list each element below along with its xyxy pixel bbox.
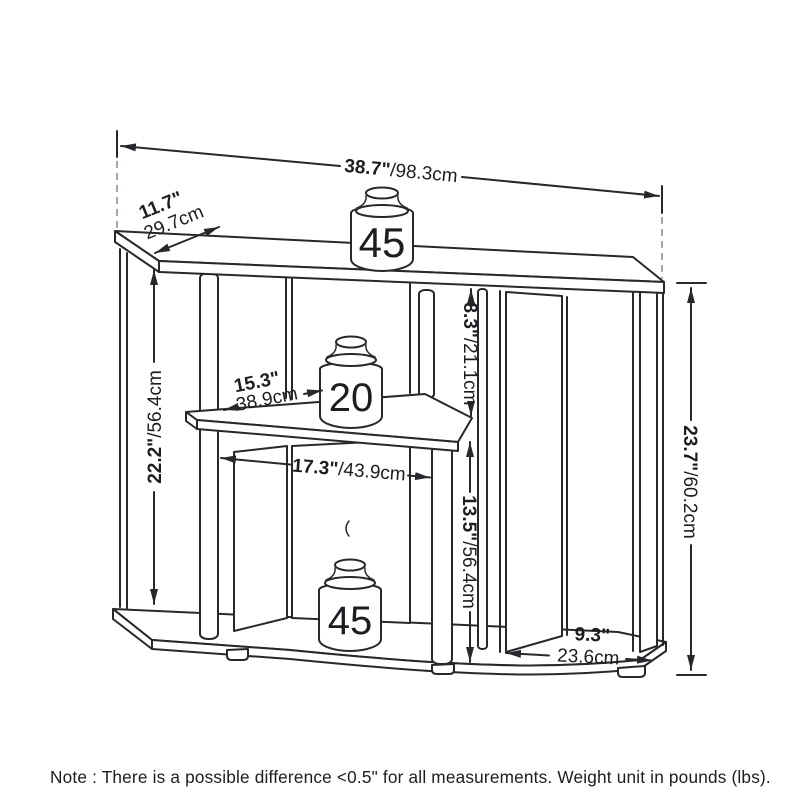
- measurement-note: Note : There is a possible difference <0…: [50, 767, 771, 787]
- diagram-page: 45 20 45 38.7"/98.3cm 11.7" 29.7cm: [0, 0, 800, 800]
- weight-top: 45: [351, 188, 413, 272]
- tv-stand-line-art: [113, 231, 666, 677]
- corner-tv-stand-dimension-diagram: 45 20 45 38.7"/98.3cm 11.7" 29.7cm: [0, 0, 800, 800]
- weight-knob-icon: [366, 188, 398, 199]
- weight-knob-icon: [336, 337, 366, 348]
- dim-upper-gap-label: 8.3"/21.1cm: [459, 302, 480, 405]
- weight-middle-value: 20: [329, 376, 374, 420]
- left-front-post: [200, 273, 218, 639]
- weight-top-value: 45: [359, 219, 406, 266]
- center-post-lower: [432, 446, 452, 664]
- weight-bottom-value: 45: [328, 599, 373, 643]
- left-side-panel: [120, 249, 127, 608]
- right-side-panel: [633, 285, 663, 652]
- dim-left-height-label: 22.2"/56.4cm: [145, 370, 166, 484]
- dim-side-panel-depth-cm: 23.6cm: [557, 645, 620, 669]
- dim-left-height: 22.2"/56.4cm: [145, 270, 166, 604]
- center-post-upper: [419, 290, 434, 398]
- right-divider-panel: [500, 291, 567, 652]
- dim-side-panel-depth-in: 9.3": [574, 624, 610, 647]
- dim-top-width-label: 38.7"/98.3cm: [343, 156, 458, 187]
- dim-upper-gap: 8.3"/21.1cm: [459, 289, 480, 416]
- back-panels: [234, 278, 410, 631]
- foot-right: [618, 666, 645, 677]
- weight-knob-icon: [335, 560, 365, 571]
- dim-overall-height: 23.7"/60.2cm: [677, 283, 706, 675]
- dim-overall-height-label: 23.7"/60.2cm: [679, 425, 700, 539]
- weight-middle: 20: [320, 337, 382, 429]
- foot-center: [432, 664, 454, 674]
- foot-left: [227, 649, 248, 660]
- dim-lower-gap-label: 13.5"/56.4cm: [458, 495, 479, 609]
